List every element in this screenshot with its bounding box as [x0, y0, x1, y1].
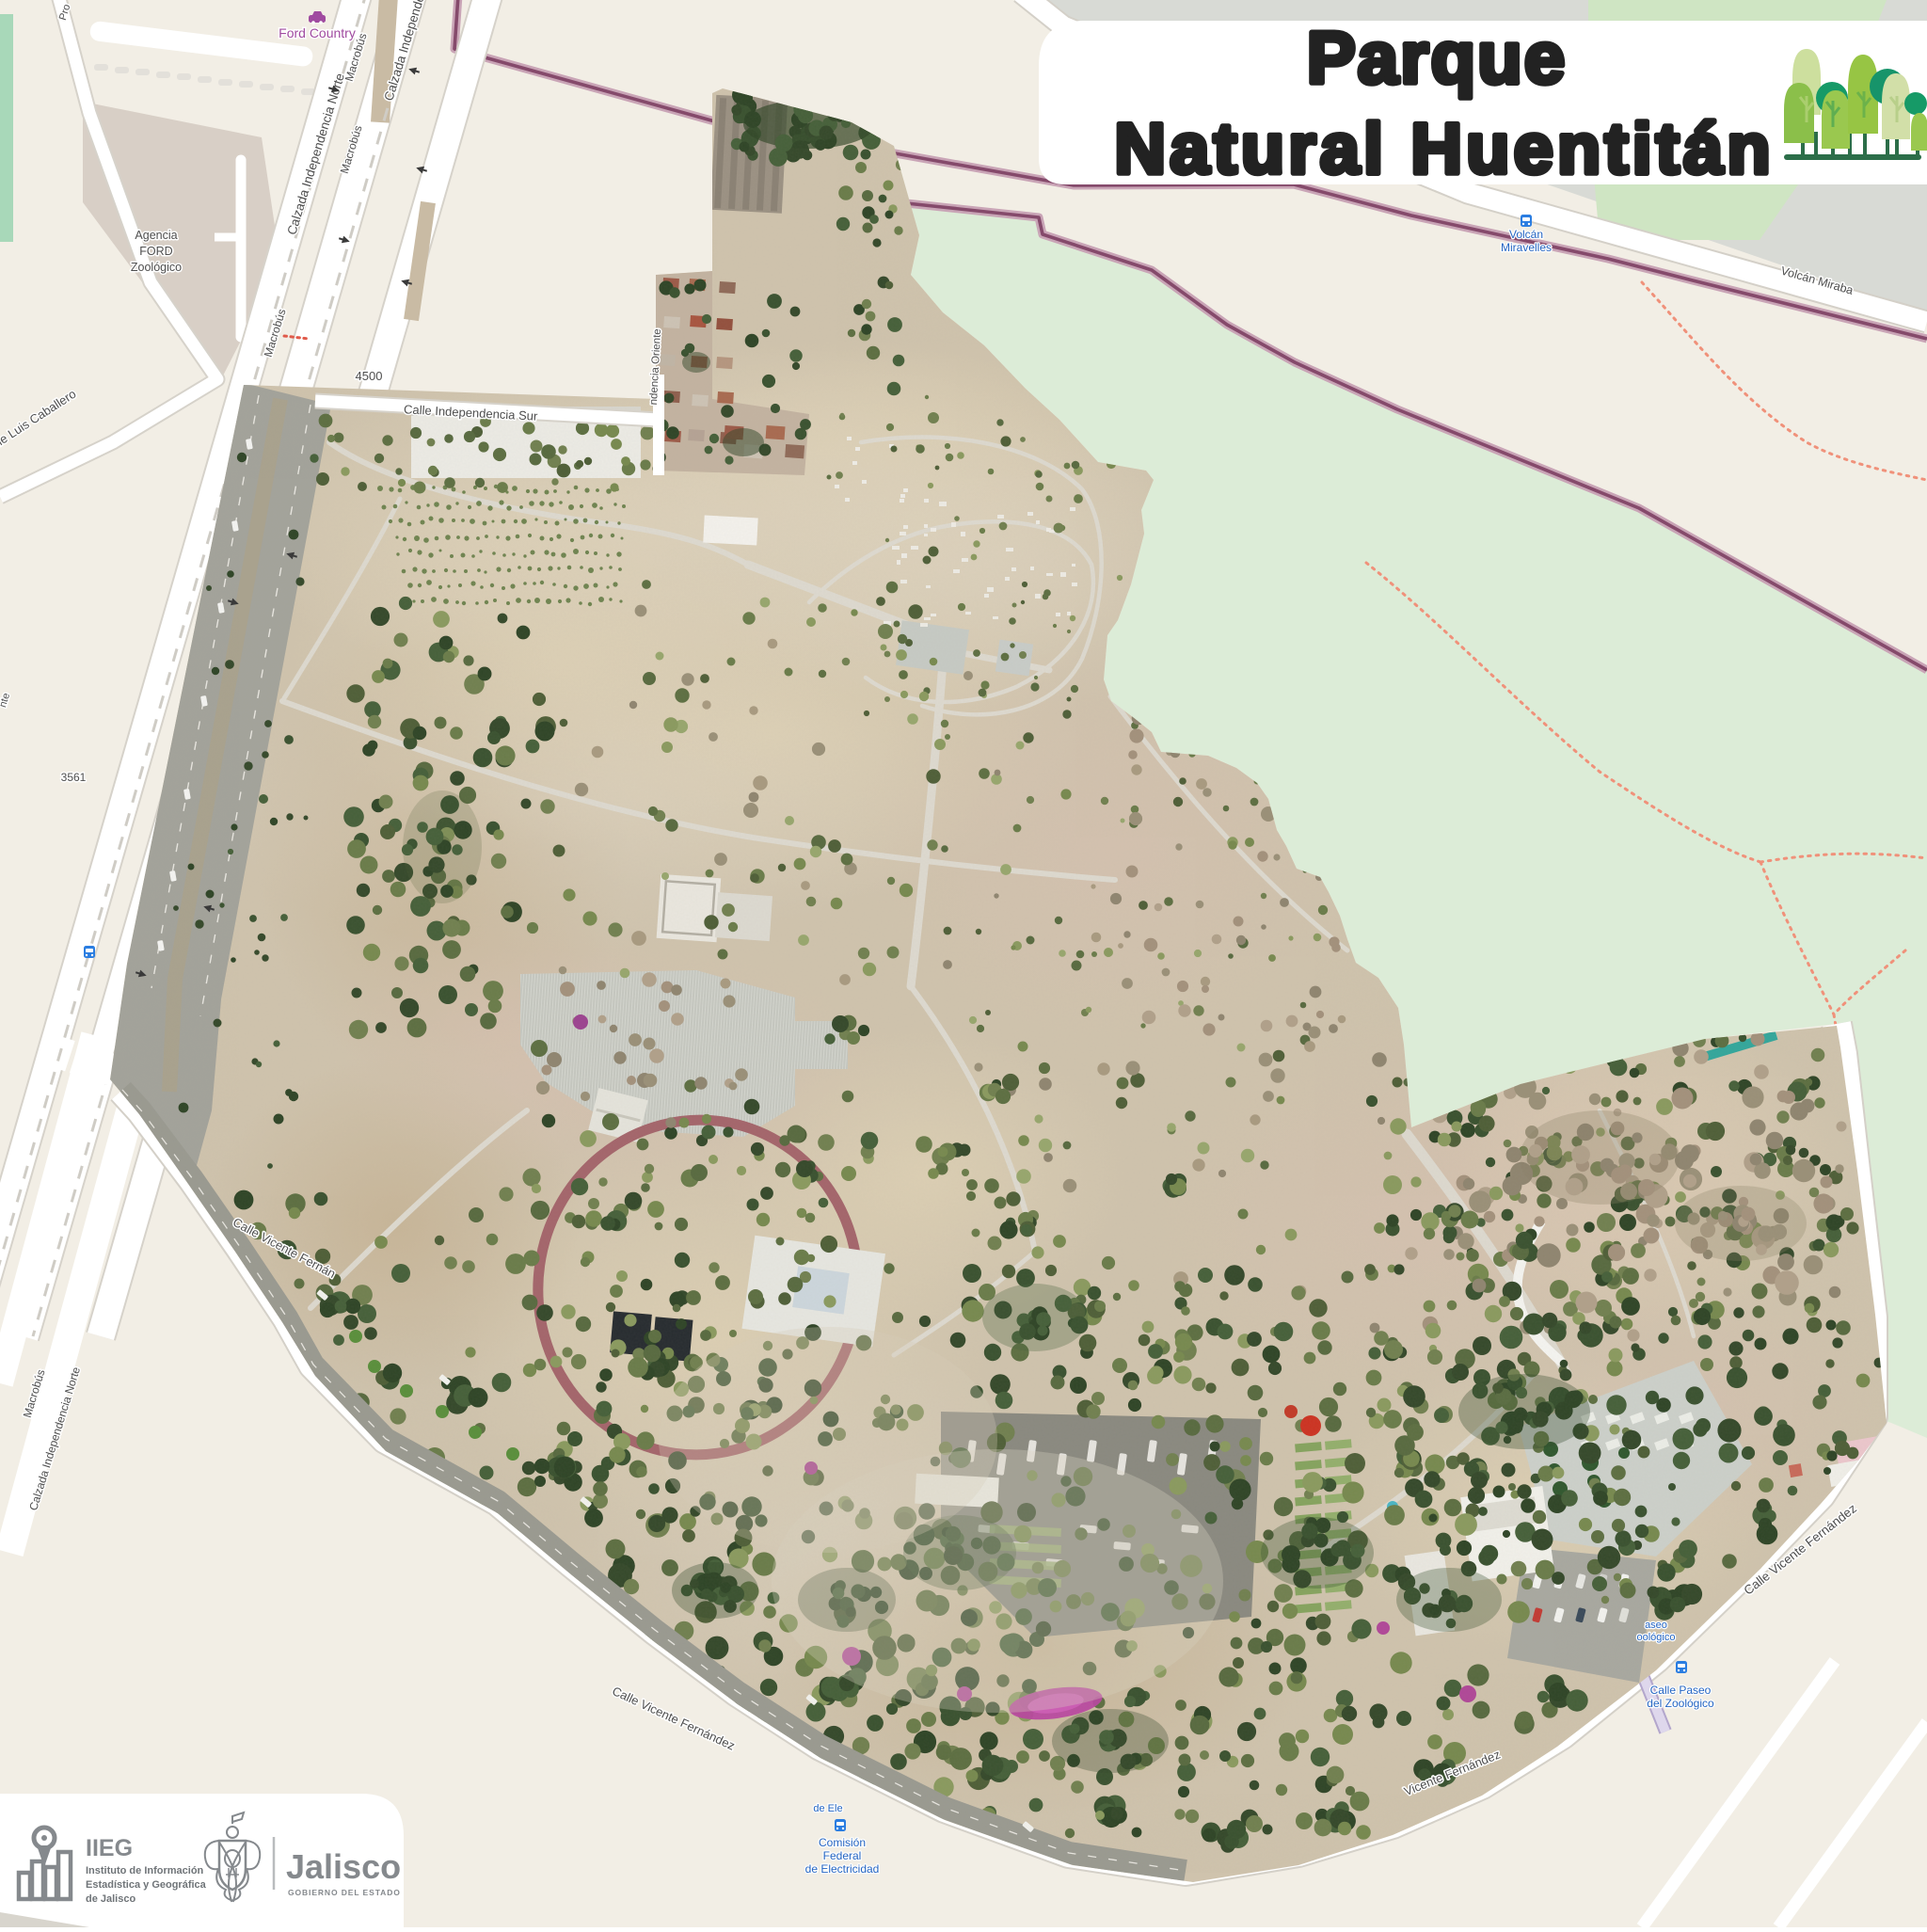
svg-text:IIEG: IIEG [86, 1835, 133, 1861]
svg-text:Agencia: Agencia [135, 229, 177, 242]
svg-text:oológico: oológico [1637, 1632, 1676, 1643]
svg-text:Estadística y Geográfica: Estadística y Geográfica [86, 1879, 207, 1891]
svg-text:Calle Paseo: Calle Paseo [1650, 1684, 1712, 1697]
svg-text:4500: 4500 [356, 369, 383, 383]
svg-text:Jalisco: Jalisco [286, 1847, 401, 1886]
svg-text:Miravelles: Miravelles [1501, 241, 1552, 254]
svg-text:Parque: Parque [1307, 16, 1567, 99]
svg-text:Volcán: Volcán [1509, 228, 1543, 241]
svg-text:de Electricidad: de Electricidad [805, 1862, 880, 1876]
svg-text:Natural Huentitán: Natural Huentitán [1114, 109, 1774, 189]
svg-text:Federal: Federal [823, 1849, 862, 1862]
svg-text:Ford Country: Ford Country [279, 25, 356, 40]
svg-text:Instituto de Información: Instituto de Información [86, 1865, 204, 1876]
svg-text:FORD: FORD [139, 245, 172, 258]
svg-text:3561: 3561 [61, 771, 87, 784]
svg-text:Zoológico: Zoológico [131, 261, 182, 274]
svg-text:del Zoológico: del Zoológico [1647, 1697, 1714, 1710]
svg-text:aseo: aseo [1645, 1620, 1667, 1631]
svg-text:GOBIERNO DEL ESTADO: GOBIERNO DEL ESTADO [288, 1888, 401, 1897]
svg-text:de Ele: de Ele [813, 1803, 842, 1814]
svg-text:de Jalisco: de Jalisco [86, 1893, 135, 1905]
svg-text:Comisión: Comisión [819, 1836, 866, 1849]
